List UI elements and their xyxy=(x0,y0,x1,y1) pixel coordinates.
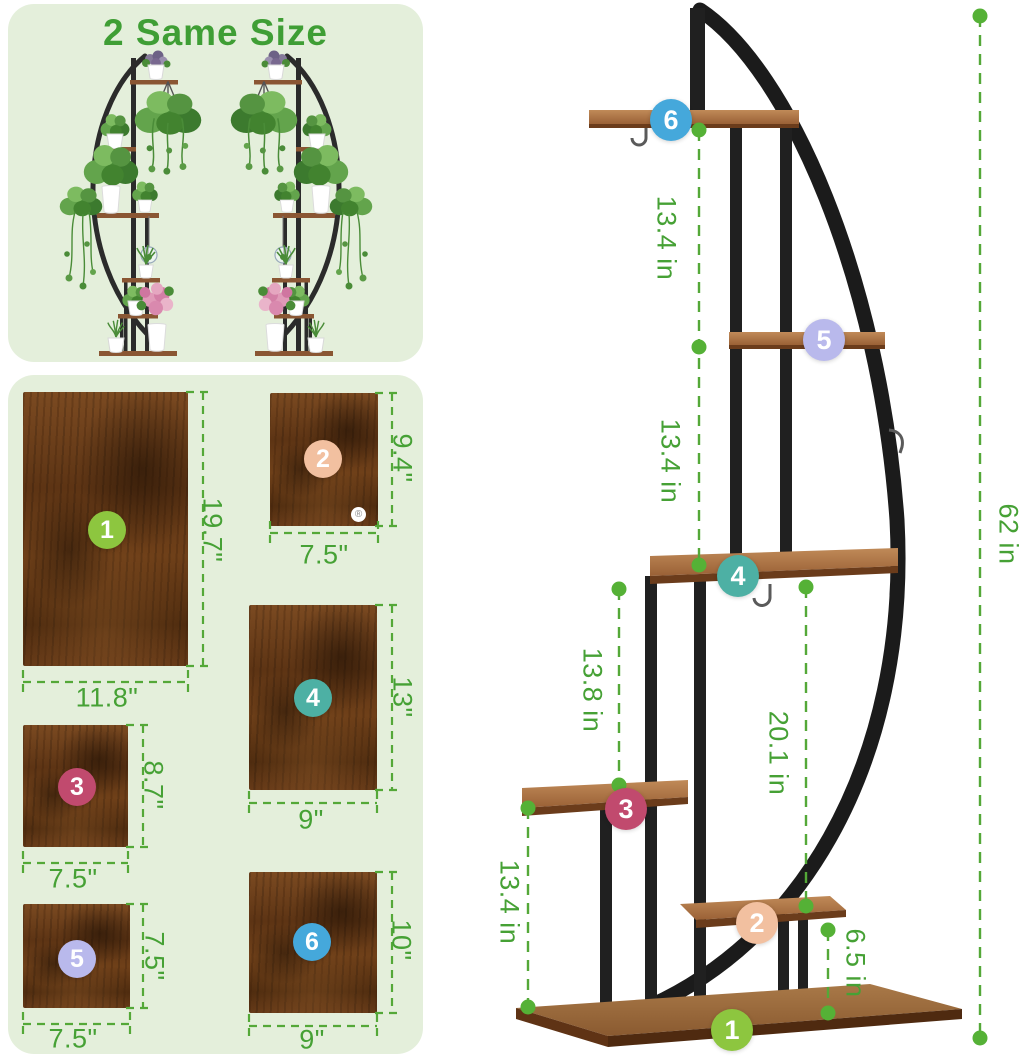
dim-tier6-to-5: 13.4 in xyxy=(651,196,682,281)
tier-3-number: 3 xyxy=(605,788,647,830)
lower-post-right xyxy=(694,576,706,1010)
board5-height-label: 7.5" xyxy=(139,931,170,980)
dim-total-height: 62 in xyxy=(993,503,1024,564)
board-4-number: 4 xyxy=(294,679,332,717)
board6-height-label: 10" xyxy=(386,919,417,960)
panel-title: 2 Same Size xyxy=(8,12,423,54)
frame-post-left xyxy=(730,118,742,558)
board5-width-label: 7.5" xyxy=(48,1024,97,1055)
stand-dimension-lines xyxy=(528,16,980,1038)
board6-width-label: 9" xyxy=(299,1025,325,1056)
tier-4-number: 4 xyxy=(717,555,759,597)
tier-5-number: 5 xyxy=(803,319,845,361)
hook-icon xyxy=(889,430,902,453)
shelf-4-board xyxy=(650,548,898,576)
board3-width-label: 7.5" xyxy=(48,864,97,895)
frame-post-right xyxy=(780,118,792,558)
dimension-dots xyxy=(521,9,988,1046)
dim-tier4-to-3: 13.8 in xyxy=(577,648,608,733)
tier-1-number: 1 xyxy=(711,1009,753,1051)
lower-post-left xyxy=(645,576,657,1010)
tier2-leg-back xyxy=(798,910,808,1008)
tier-2-number: 2 xyxy=(736,902,778,944)
board-5-number: 5 xyxy=(58,940,96,978)
two-same-size-panel: 2 Same Size xyxy=(8,4,423,362)
board-6-number: 6 xyxy=(293,923,331,961)
stand-frame-arc xyxy=(612,10,898,1021)
dim-tier5-to-4: 13.4 in xyxy=(655,419,686,504)
tier-6-number: 6 xyxy=(650,99,692,141)
hook-icon xyxy=(632,128,646,145)
board3-height-label: 8.7" xyxy=(138,760,169,809)
dim-tier2-to-base: 6.5 in xyxy=(840,928,871,997)
board-3-number: 3 xyxy=(58,768,96,806)
top-post xyxy=(690,8,705,114)
dim-tier3-to-base: 13.4 in xyxy=(494,860,525,945)
board1-width-label: 11.8" xyxy=(76,683,139,714)
product-dimension-image: { "top_panel": { "title": "2 Same Size" … xyxy=(0,0,1024,1058)
stand-drawing xyxy=(516,8,962,1047)
board2-height-label: 9.4" xyxy=(387,433,418,482)
board1-height-label: 19.7" xyxy=(197,498,228,563)
registered-mark: ® xyxy=(351,507,366,522)
dim-tier4-to-2: 20.1 in xyxy=(763,711,794,796)
hook-icon xyxy=(754,584,770,606)
tier2-leg-front xyxy=(778,916,789,1012)
board-1-number: 1 xyxy=(88,511,126,549)
board2-width-label: 7.5" xyxy=(299,540,348,571)
board4-height-label: 13" xyxy=(387,676,418,717)
board-2-number: 2 xyxy=(304,440,342,478)
tier3-leg xyxy=(600,808,612,1010)
board4-width-label: 9" xyxy=(298,805,324,836)
shelf-6-board xyxy=(589,110,799,124)
